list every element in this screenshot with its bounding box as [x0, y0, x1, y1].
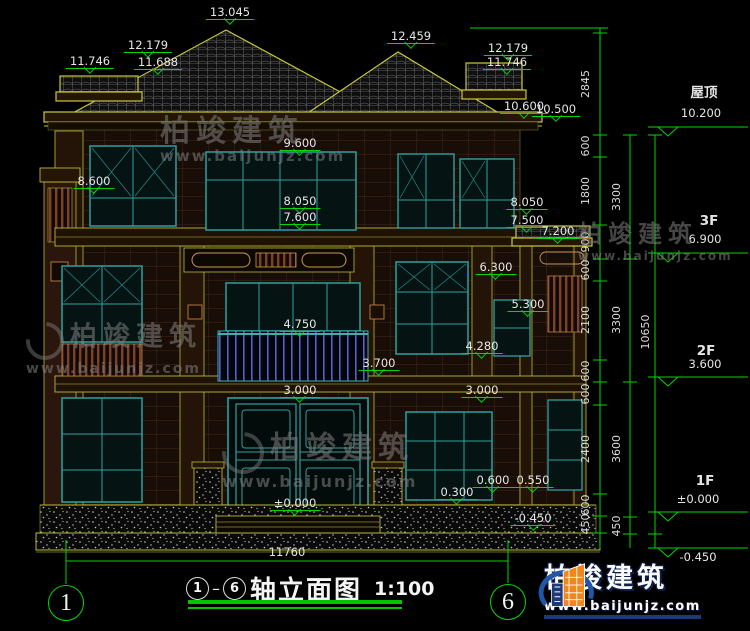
- elevation-drawing: [0, 0, 750, 631]
- watermark: 柏竣建筑 www.baijunjz.com: [578, 222, 733, 264]
- dash: –: [212, 579, 220, 598]
- baijun-logo-icon: [538, 556, 602, 620]
- axis-bubble-left: 1: [48, 585, 84, 621]
- cad-elevation-viewport: 13.04512.45912.17911.74611.68812.17911.7…: [0, 0, 750, 631]
- title-underline: [188, 600, 402, 604]
- watermark: 柏竣建筑 www.baijunjz.com: [222, 432, 417, 491]
- axis-bubble-right: 6: [490, 584, 526, 620]
- title-scale: 1:100: [374, 578, 434, 600]
- watermark: 柏竣建筑 www.baijunjz.com: [160, 116, 345, 164]
- brand-logo: 柏竣建筑 www.baijunjz.com: [538, 556, 701, 619]
- axis-ref-end: 6: [223, 577, 246, 600]
- ground-group: [36, 505, 600, 552]
- watermark-name: 柏竣建筑: [160, 114, 304, 149]
- watermark-url: www.baijunjz.com: [160, 147, 345, 165]
- watermark: 柏竣建筑 www.baijunjz.com: [26, 322, 202, 377]
- axis-ref-start: 1: [186, 577, 209, 600]
- title-underline-2: [188, 607, 402, 609]
- swoosh-icon: [18, 314, 72, 368]
